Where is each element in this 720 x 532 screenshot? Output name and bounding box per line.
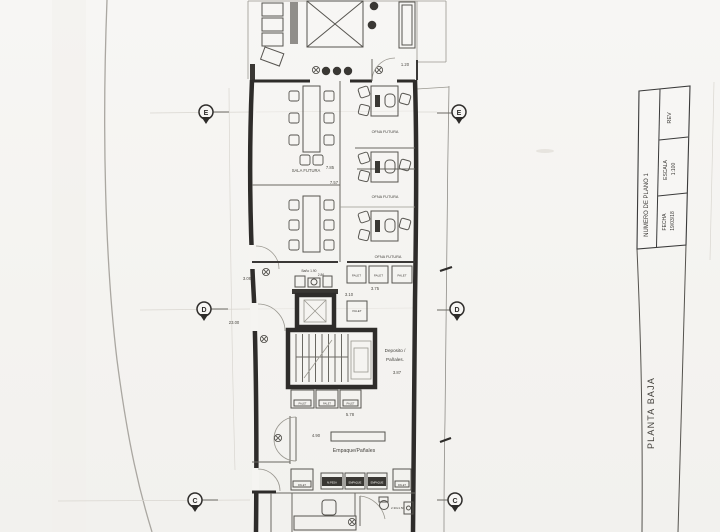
dim-286: 2.86 (318, 273, 325, 277)
palet-label: PALET (352, 309, 361, 313)
dim-2300: 23.00 (229, 320, 240, 325)
title-block: NUMERO DE PLANO 1 REV ESCALA 1:100 FECHA… (637, 86, 690, 532)
bubble-letter: D (201, 307, 206, 314)
dim-wc: 2.30x1.50 (391, 506, 405, 510)
fecha-value: 19/03/18 (670, 211, 676, 231)
turnstile-dots (322, 67, 352, 75)
palet-label: PALET (323, 402, 331, 406)
dim-310: 3.10 (345, 292, 354, 297)
desk-cluster-2 (358, 152, 411, 182)
band-line-right (678, 245, 686, 532)
grid-bubble-e-right: E (437, 105, 466, 124)
grid-bubble-c-right: C (437, 493, 462, 512)
office-chair (385, 160, 395, 173)
fan-symbol (262, 268, 269, 275)
floor-plan-drawing: 1.20 (0, 0, 720, 532)
palet-label: PALET (298, 402, 306, 406)
door-arc (372, 58, 395, 81)
fan-symbol (274, 434, 281, 441)
dim-757: 7.57 (330, 180, 339, 185)
empaque-section: 4.90 Empaque/Pañales PALET M.PESA EMPAQU… (252, 416, 411, 490)
paper-edge-line (710, 82, 714, 260)
bubble-letter: C (452, 498, 457, 505)
door-arc (258, 304, 285, 331)
conference-chairs-2 (289, 200, 334, 250)
bubble-letter: C (192, 498, 197, 505)
grid-bubble-e-left: E (199, 105, 229, 124)
conference-table-1 (303, 86, 320, 152)
column-dot (368, 21, 377, 30)
rev-label: REV (667, 112, 673, 124)
storage-shelf (399, 2, 415, 48)
door-opening (249, 245, 256, 269)
desk-cluster-3 (358, 211, 411, 241)
grid-connector-top (417, 87, 449, 89)
fan-symbol (260, 335, 267, 342)
dim-375: 3.75 (371, 286, 380, 291)
door-opening (252, 468, 259, 492)
dim-578: 5.78 (346, 412, 355, 417)
conference-table-2 (303, 196, 320, 252)
dim-entry: 1.20 (401, 62, 410, 67)
paper-fold-line (105, 0, 152, 532)
grid-bubble-d-left: D (197, 302, 228, 321)
guest-chair (358, 211, 371, 224)
dimension-tick-1 (440, 267, 452, 271)
conference-chairs-1 (289, 91, 334, 165)
work-counter (331, 432, 385, 441)
escala-value: 1:100 (671, 163, 677, 176)
palet-label: PALET (346, 402, 354, 406)
bubble-letter: D (454, 307, 459, 314)
plano-number: NUMERO DE PLANO 1 (644, 173, 650, 237)
empaque-label: EMPAQUE (349, 481, 362, 485)
room-label-ofna-3: OFNA FUTURA (375, 255, 402, 259)
dim-387: 3.87 (393, 370, 402, 375)
grid-line-vertical-right (444, 86, 449, 532)
room-label-empaque: Empaque/Pañales (333, 448, 376, 454)
scanned-floor-plan-page: 1.20 (0, 0, 720, 532)
guest-chair (358, 170, 370, 182)
door-arc (256, 246, 279, 269)
staircase-enclosure (288, 330, 375, 387)
fecha-label: FECHA (662, 213, 668, 231)
room-label-sala: SALA FUTURA (292, 168, 321, 173)
door-opening (251, 303, 258, 331)
closet-shelves (261, 3, 284, 66)
office-chair (385, 94, 395, 107)
grid-bubble-c-left: C (188, 493, 218, 512)
stair-section: Deposito / Pañales. 3.87 PALET PALET PAL… (288, 330, 406, 417)
palet-label: PALET (298, 483, 306, 487)
column-dot (370, 2, 379, 11)
door-arc (258, 469, 280, 491)
room-label-deposito-2: Pañales. (386, 357, 404, 362)
dim-309: 3.09 (243, 276, 252, 281)
palet-label: PALET (374, 274, 383, 278)
room-label-deposito-1: Deposito / (385, 348, 406, 353)
scan-smudge (536, 149, 554, 153)
wc-fixtures (295, 276, 332, 287)
palet-label: PALET (398, 483, 406, 487)
door-arc (360, 496, 385, 519)
empaque-label: EMPAQUE (371, 481, 384, 485)
grid-bubble-d-right: D (437, 302, 464, 321)
guest-chair (358, 229, 370, 241)
palet-label: PALET (397, 274, 406, 278)
dim-490: 4.90 (312, 433, 321, 438)
dimension-tick-2 (440, 438, 451, 442)
band-line-left (637, 249, 642, 532)
guest-chair (399, 218, 411, 230)
top-entry-section: 1.20 (248, 1, 446, 81)
skylight-x-box (307, 1, 363, 47)
guest-chair (358, 104, 370, 116)
counter (294, 516, 356, 530)
escala-label: ESCALA (663, 159, 669, 179)
room-label-ofna-2: OFNA FUTURA (372, 195, 399, 199)
sheet-title: PLANTA BAJA (646, 377, 656, 449)
dim-785: 7.85 (326, 165, 335, 170)
sink (322, 500, 336, 515)
grid-ghost-lines (58, 88, 437, 501)
office-section: OFNA FUTURA SALA FUTURA OFNA FUTURA OFNA… (252, 81, 415, 262)
bathroom-section: 2.30x1.50 (252, 492, 415, 532)
mpesa-label: M.PESA (327, 481, 337, 485)
bubble-letter: E (204, 110, 209, 117)
guest-chair (399, 93, 411, 105)
guest-chair (358, 86, 371, 99)
monitor (375, 161, 380, 173)
monitor (375, 220, 380, 232)
office-chair (385, 219, 395, 232)
room-label-ofna-1: OFNA FUTURA (372, 130, 399, 134)
guest-chair (358, 152, 371, 165)
fan-symbol (312, 66, 319, 73)
elevator-shaft (297, 295, 334, 327)
monitor (375, 95, 380, 107)
fan-symbol (348, 518, 355, 525)
room-label-bano: Baño 1.90 (301, 269, 316, 273)
wall-fin (290, 2, 298, 44)
bubble-letter: E (457, 110, 462, 117)
palet-label: PALET (352, 274, 361, 278)
